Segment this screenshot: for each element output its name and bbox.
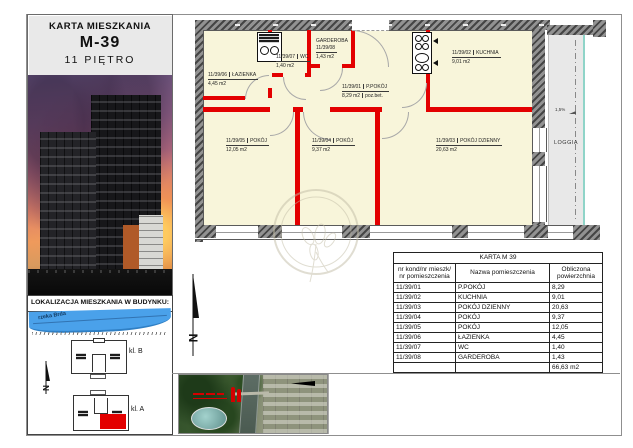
apartment-card-page: KARTA MIESZKANIA M-39 11 PIĘTRO LOKALIZA… [0, 0, 633, 448]
card-header: KARTA MIESZKANIA M-39 11 PIĘTRO [27, 14, 173, 76]
table-row: 11/39/07WC1,40 [394, 343, 603, 353]
wall-segment [452, 225, 468, 238]
burner-icon [422, 64, 429, 71]
wall-red-room-divider [375, 111, 380, 225]
fixture-marker-icon [433, 60, 438, 66]
floor-plan: LOGGIA 1,5% [190, 14, 610, 264]
window [532, 166, 547, 222]
service-block [110, 353, 120, 360]
table-col-header: Obliczona powierzchnia [550, 264, 603, 283]
burner-icon [415, 43, 422, 50]
shore-hatch [32, 332, 168, 335]
loggia: LOGGIA 1,5% [548, 35, 585, 225]
building-photo [27, 75, 173, 295]
fixture-hatch [259, 34, 279, 43]
connector-tab [90, 374, 106, 379]
apartment-highlight [100, 414, 126, 429]
total-area: 66,63 m2 [550, 363, 603, 373]
building-a-outline [73, 395, 129, 431]
wall-red-bath-bottom [203, 96, 245, 100]
burner-icon [422, 43, 429, 50]
room-label-pokoj-dzienny: 11/39/03POKÓJ DZIENNY 20,63 m2 [436, 138, 502, 153]
footer-divider [328, 374, 329, 434]
table-total-row: 66,63 m2 [394, 363, 603, 373]
kitchen-fixture-icon [412, 32, 432, 74]
north-arrow: N [184, 268, 202, 362]
room-label-ppokoj: 11/39/01P.POKÓJ 8,29 m2poz.bet. [342, 84, 389, 99]
table-row: 11/39/05POKÓJ12,05 [394, 323, 603, 333]
watermark-logo [270, 186, 362, 286]
loggia-label: LOGGIA [549, 140, 583, 146]
stair-core-a [94, 398, 108, 414]
wall-corner-nib [593, 20, 606, 37]
loggia-slope-label: 1,5% [555, 107, 565, 112]
floor-label: 11 PIĘTRO [28, 54, 172, 66]
loggia-axis-line [575, 40, 576, 220]
wall-bottom-windows [195, 225, 548, 240]
room-label-wc: 11/39/07WC 1,40 m2 [276, 54, 310, 69]
wall-right [532, 152, 545, 166]
aerial-photo [178, 374, 328, 434]
svg-text:N: N [41, 385, 50, 391]
wall-left [195, 20, 203, 242]
table-col-header: nr kond/nr mieszk/ nr pomieszczenia [394, 264, 456, 283]
stair-b-label: kl. B [129, 348, 143, 355]
table-row: 11/39/06ŁAZIENKA4,45 [394, 333, 603, 343]
room-label-garderoba: GARDEROBA 11/39/08 1,43 m2 [316, 38, 348, 60]
table-row: 11/39/08GARDEROBA1,43 [394, 353, 603, 363]
table-title: KARTA M 39 [394, 253, 603, 264]
location-marker [193, 391, 245, 409]
svg-text:N: N [186, 334, 200, 343]
table-row: 11/39/02KUCHNIA9,01 [394, 293, 603, 303]
slope-triangle-icon [569, 111, 576, 114]
wall-red-main [203, 107, 532, 112]
unit-number: M-39 [28, 34, 172, 52]
table-row: 11/39/03POKÓJ DZIENNY20,63 [394, 303, 603, 313]
service-block [76, 353, 86, 360]
river [29, 308, 172, 334]
room-label-pokoj-12: 11/39/05POKÓJ 12,05 m2 [226, 138, 269, 153]
arena-building [191, 407, 227, 430]
wall-segment [524, 225, 548, 238]
wall-right [532, 30, 545, 128]
room-label-lazienka: 11/39/06ŁAZIENKA 4,45 m2 [208, 72, 258, 87]
table-row: 11/39/01P.POKÓJ8,29 [394, 283, 603, 293]
entrance-opening [352, 20, 389, 31]
wall-segment [195, 225, 216, 238]
entry-tab [93, 338, 105, 343]
basin-icon [260, 46, 269, 55]
table-row: 11/39/04POKÓJ9,37 [394, 313, 603, 323]
stair-a-label: kl. A [131, 406, 144, 413]
window [532, 128, 547, 152]
burner-icon [415, 35, 422, 42]
service-block [78, 410, 88, 417]
burner-icon [422, 35, 429, 42]
fixture-marker-icon [433, 38, 438, 44]
wall-segment [573, 225, 600, 240]
photo-fence [28, 270, 172, 273]
card-title: KARTA MIESZKANIA [28, 21, 172, 32]
burner-icon [415, 64, 422, 71]
room-table: KARTA M 39 nr kond/nr mieszk/ nr pomiesz… [393, 252, 603, 373]
table-col-header: Nazwa pomieszczenia [456, 264, 550, 283]
building-b-outline [71, 340, 127, 374]
location-panel: LOKALIZACJA MIESZKANIA W BUDYNKU: rzeka … [27, 295, 173, 435]
photo-tower-left [40, 132, 96, 284]
sink-icon [415, 53, 429, 63]
room-label-kuchnia: 11/39/02KUCHNIA 9,01 m2 [452, 50, 501, 65]
stair-core-b [92, 354, 106, 372]
room-label-pokoj-9: 11/39/04POKÓJ 9,37 m2 [312, 138, 355, 153]
north-arrow-small: N [40, 358, 52, 400]
